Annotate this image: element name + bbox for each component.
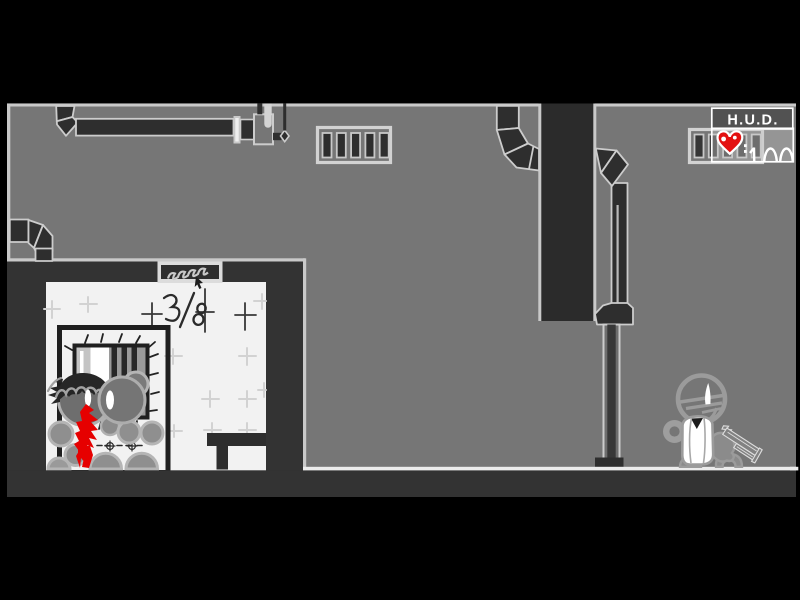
- svg-text:H.U.D.: H.U.D.: [727, 113, 778, 129]
